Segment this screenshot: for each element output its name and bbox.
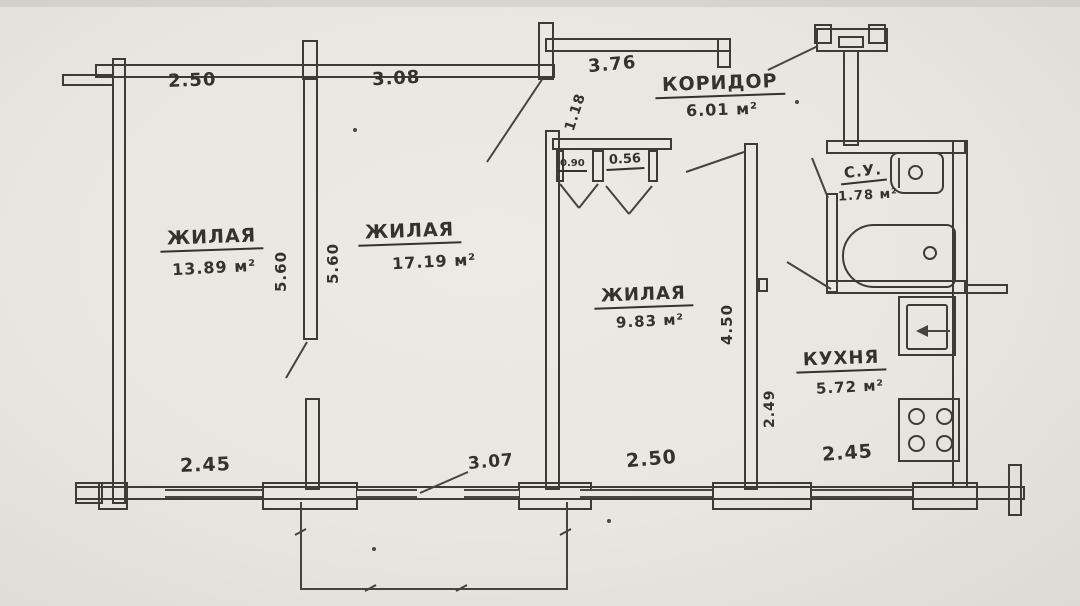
dimension-label-bottom-2: 3.07 xyxy=(467,450,515,474)
ink-speck xyxy=(353,128,357,132)
closet1-door-line xyxy=(560,184,579,208)
room-label-living3: ЖИЛАЯ xyxy=(594,282,694,309)
floor-plan-canvas: 2.50 3.08 3.76 1.18 КОРИДОР 6.01 м² ЖИЛА… xyxy=(0,0,1080,606)
balcony-tick xyxy=(365,585,376,591)
dimension-label-bottom-3: 2.50 xyxy=(625,446,678,472)
room-label-living1: ЖИЛАЯ xyxy=(160,224,264,253)
rooms12-door-leader xyxy=(286,342,307,378)
room-label-living2: ЖИЛАЯ xyxy=(358,218,462,247)
bathroom-door-swing xyxy=(812,158,828,198)
room-label-kitchen: КУХНЯ xyxy=(796,346,887,373)
dimension-label-bottom-1: 2.45 xyxy=(180,453,232,477)
dimension-label-depth-right: 5.60 xyxy=(324,243,342,284)
dimension-label-kitchen-depth: 2.49 xyxy=(762,389,778,428)
dimension-label-closet2: 0.56 xyxy=(606,151,645,171)
closet1-door-line xyxy=(579,184,598,208)
ink-speck xyxy=(795,100,799,104)
ink-speck xyxy=(372,547,376,551)
window-dim-leader xyxy=(420,472,468,493)
dimension-label-top-3: 3.76 xyxy=(587,52,637,77)
room3-door-swing xyxy=(686,152,744,172)
dimension-label-room3-depth: 4.50 xyxy=(718,304,736,345)
room2-door-swing xyxy=(487,78,543,162)
entrance-door-swing xyxy=(768,46,818,70)
kitchen-door-swing xyxy=(787,262,831,289)
door-swing-overlay xyxy=(0,0,1080,606)
dimension-label-closet1: 0.90 xyxy=(558,158,587,172)
area-label-kitchen: 5.72 м² xyxy=(816,376,885,398)
dimension-label-bottom-4: 2.45 xyxy=(821,440,873,465)
sink-arrow-head xyxy=(916,325,928,337)
balcony-tick xyxy=(560,529,571,535)
balcony-tick xyxy=(456,585,467,591)
room-label-corridor: КОРИДОР xyxy=(655,70,785,100)
closet2-door-line xyxy=(606,186,629,214)
area-label-living3: 9.83 м² xyxy=(616,310,685,332)
area-label-corridor: 6.01 м² xyxy=(686,99,759,121)
ink-speck xyxy=(607,519,611,523)
dimension-label-top-1: 2.50 xyxy=(168,69,217,92)
area-label-bathroom: 1.78 м² xyxy=(838,186,899,204)
balcony-tick xyxy=(295,529,306,535)
dimension-label-depth-left: 5.60 xyxy=(272,251,290,292)
dimension-label-top-2: 3.08 xyxy=(371,67,420,91)
closet2-door-line xyxy=(629,186,652,214)
